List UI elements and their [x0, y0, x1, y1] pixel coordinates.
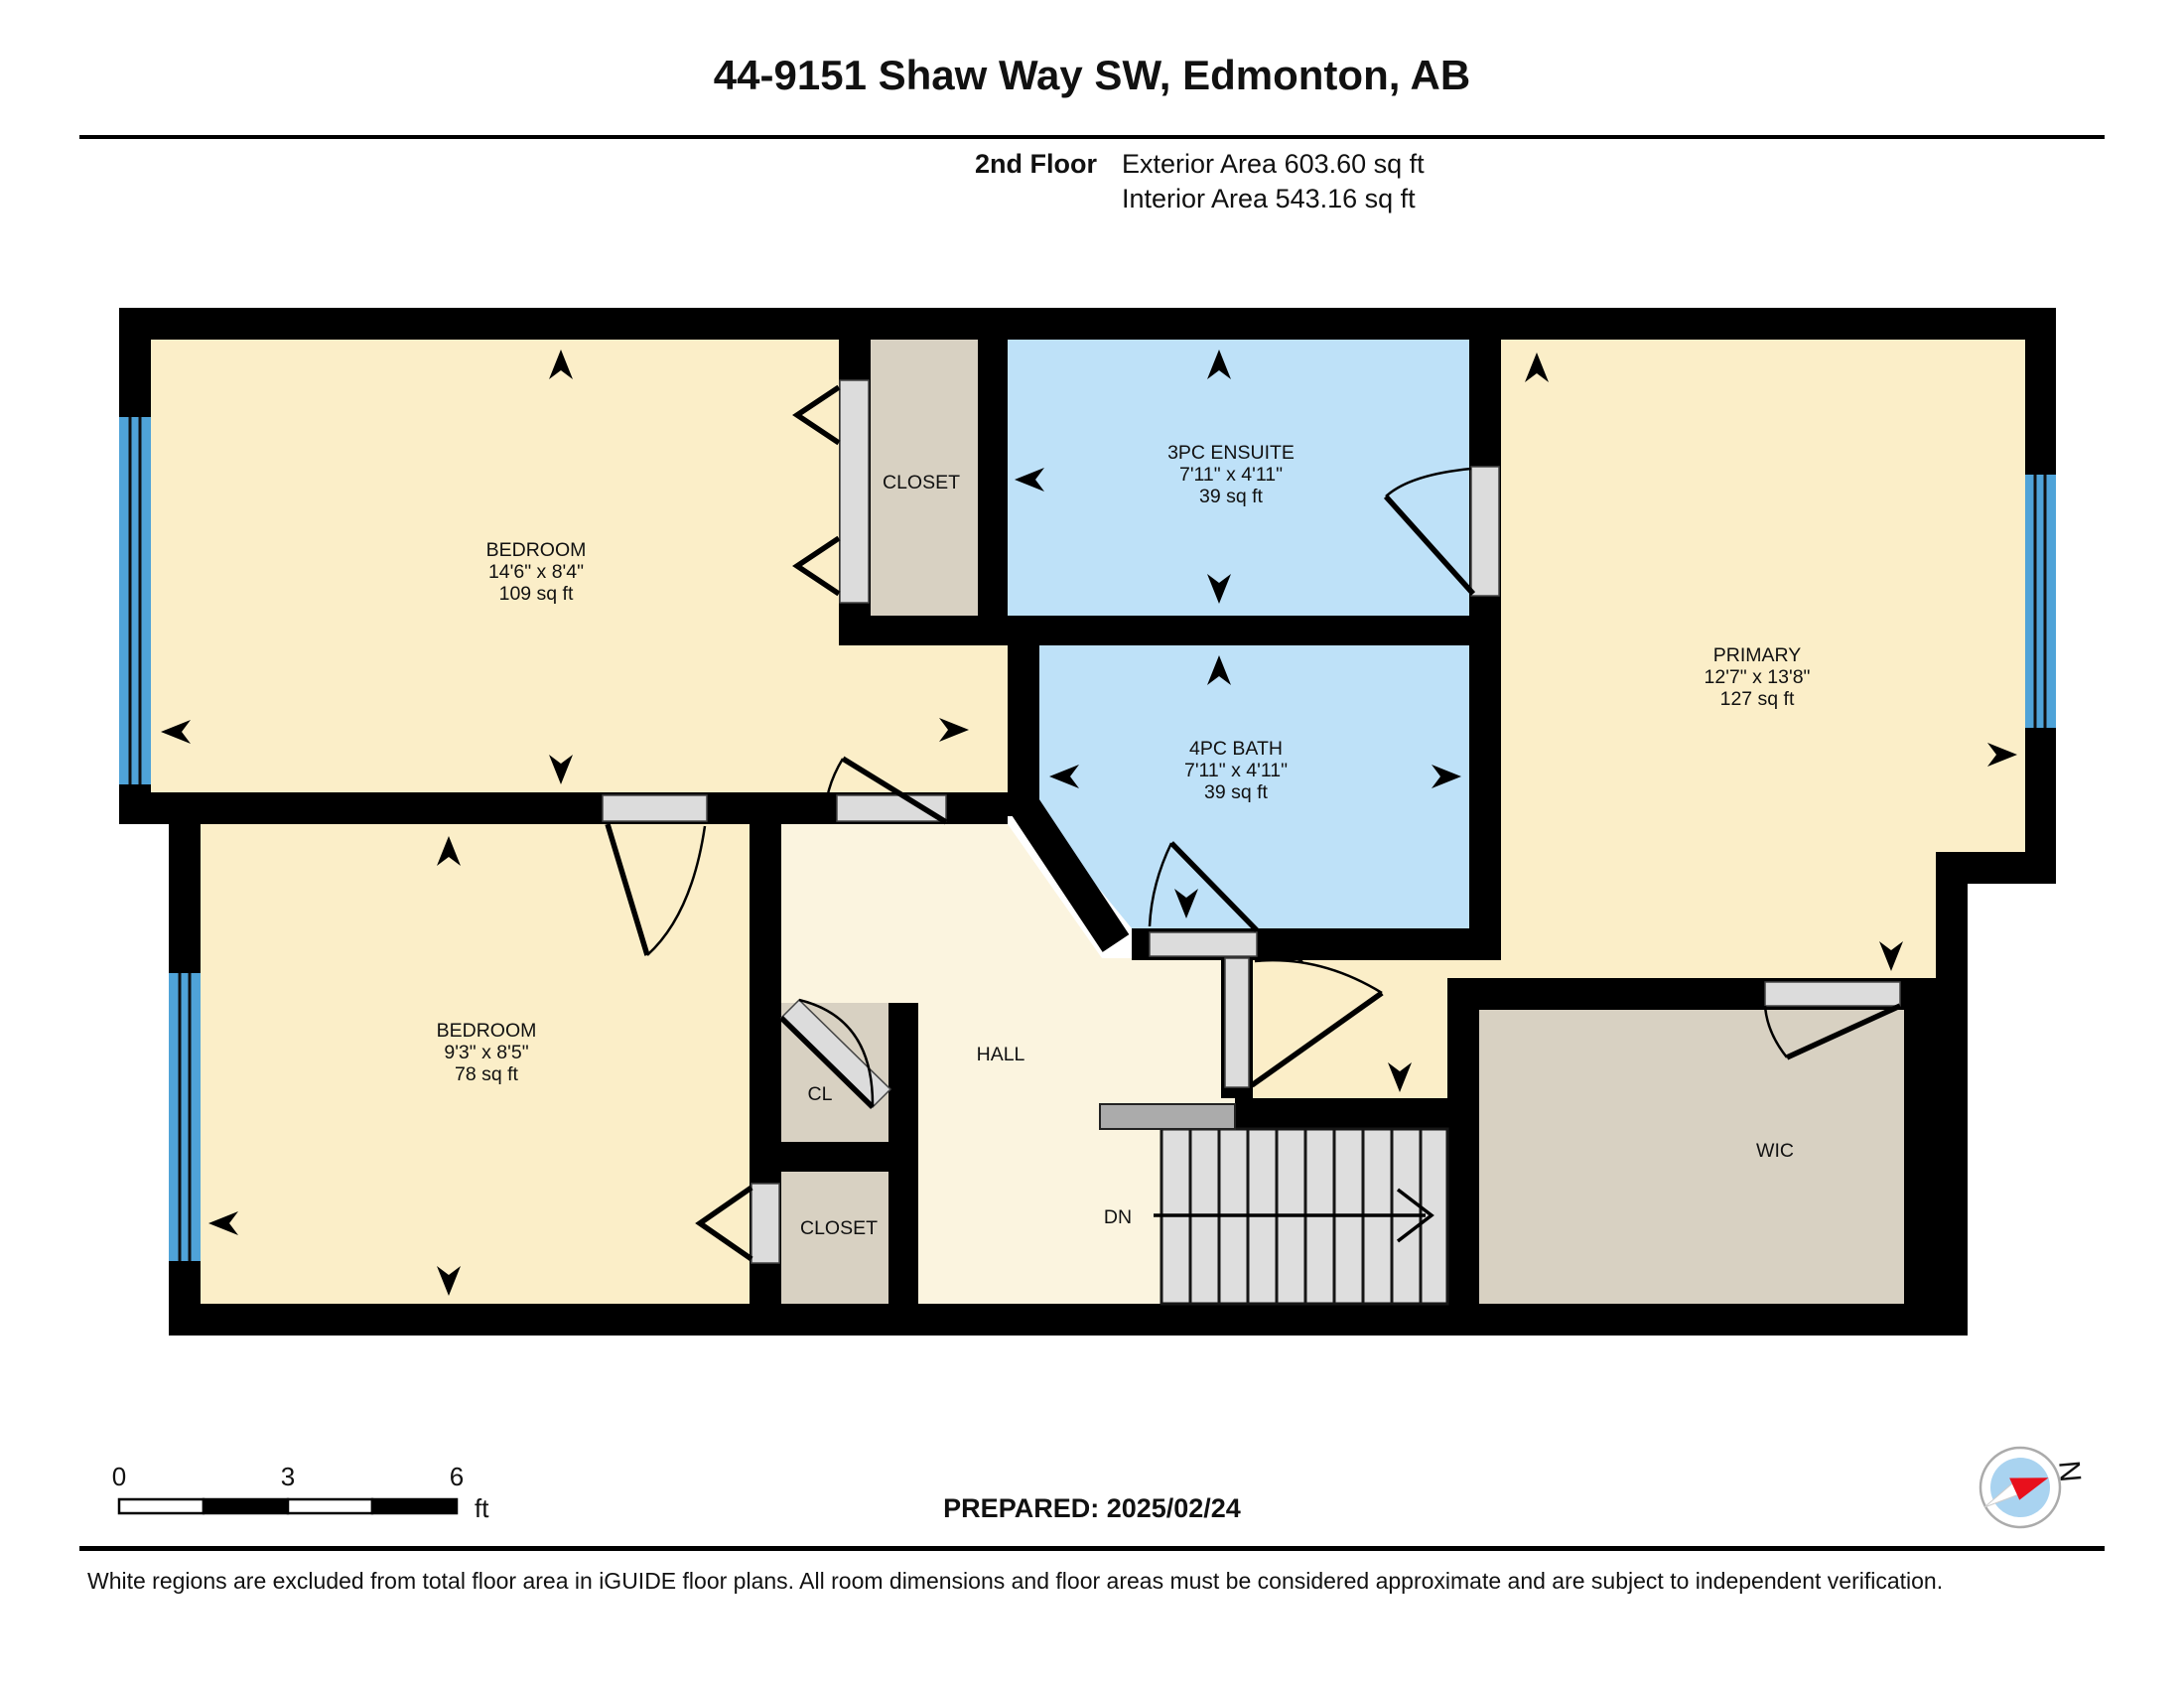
wall-right-lower: [1936, 884, 1968, 1336]
interior-area: Interior Area 543.16 sq ft: [1122, 184, 1416, 213]
wall-stairs-wic: [1447, 978, 1479, 1304]
wall-bottom: [169, 1304, 1968, 1336]
scale-seg-4: [372, 1499, 457, 1513]
room-dims: 7'11" x 4'11": [1184, 760, 1288, 781]
wall-bath-left: [1008, 645, 1039, 816]
scale-tick-0: 0: [112, 1462, 126, 1491]
footer: White regions are excluded from total fl…: [79, 1546, 2105, 1594]
scale-bar: 0 3 6 ft: [112, 1462, 489, 1523]
window-primary: [2025, 475, 2056, 728]
room-dims: 9'3" x 8'5": [444, 1042, 528, 1063]
opening-ensuite-door: [1471, 467, 1499, 596]
room-area: 109 sq ft: [499, 583, 574, 605]
page-title: 44-9151 Shaw Way SW, Edmonton, AB: [714, 52, 1470, 98]
window-bedroom1: [119, 417, 151, 784]
stair-landing: [1100, 1104, 1235, 1129]
scale-tick-3: 3: [281, 1462, 295, 1491]
room-name: PRIMARY: [1713, 644, 1802, 666]
closet-lower-label: CLOSET: [800, 1217, 878, 1239]
room-area: 127 sq ft: [1720, 688, 1795, 710]
floorplan-page: 44-9151 Shaw Way SW, Edmonton, AB 2nd Fl…: [0, 0, 2184, 1688]
prepared-date: PREPARED: 2025/02/24: [943, 1493, 1241, 1523]
bedroom1-label: BEDROOM 14'6" x 8'4" 109 sq ft: [486, 539, 587, 605]
closet-top-label: CLOSET: [883, 472, 960, 493]
opening-closet-top-bifold: [840, 380, 869, 603]
exterior-area: Exterior Area 603.60 sq ft: [1122, 149, 1425, 179]
footer-rule: [79, 1546, 2105, 1551]
scale-seg-2: [204, 1499, 288, 1513]
cl-label: CL: [808, 1083, 833, 1105]
room-area: 39 sq ft: [1199, 486, 1264, 507]
room-area: 78 sq ft: [455, 1063, 519, 1085]
opening-bath-door: [1150, 932, 1257, 956]
wic-label: WIC: [1756, 1140, 1794, 1162]
room-name: 4PC BATH: [1189, 738, 1283, 760]
wall-above-stairs: [1235, 1098, 1447, 1129]
wall-ensuite-bath: [839, 616, 1501, 645]
opening-wic-door: [1765, 982, 1900, 1006]
window-bedroom2: [169, 973, 201, 1261]
scale-tick-6: 6: [450, 1462, 464, 1491]
opening-hall-primary-door: [1225, 958, 1249, 1087]
opening-bedroom1-door: [837, 795, 946, 821]
hall-label: HALL: [977, 1044, 1025, 1065]
wic-floor: [1479, 1010, 1904, 1304]
header: 44-9151 Shaw Way SW, Edmonton, AB 2nd Fl…: [79, 52, 2105, 213]
room-name: BEDROOM: [437, 1020, 537, 1042]
room-area: 39 sq ft: [1204, 781, 1269, 803]
hall-floor-left: [781, 824, 918, 1003]
wall-top: [119, 308, 2056, 340]
stairs-dn-label: DN: [1104, 1206, 1132, 1228]
disclaimer-text: White regions are excluded from total fl…: [87, 1568, 1943, 1594]
room-dims: 7'11" x 4'11": [1179, 464, 1283, 486]
floor-label: 2nd Floor: [975, 149, 1097, 179]
opening-bedroom2-door: [603, 795, 707, 821]
compass-north-label: N: [2052, 1460, 2087, 1483]
room-name: 3PC ENSUITE: [1167, 442, 1295, 464]
scale-seg-1: [119, 1499, 204, 1513]
compass-icon: N: [1979, 1448, 2087, 1527]
scale-seg-3: [288, 1499, 372, 1513]
wall-cl-closet-divider: [750, 1142, 918, 1172]
scale-unit: ft: [475, 1493, 489, 1523]
room-dims: 14'6" x 8'4": [488, 561, 584, 583]
room-name: BEDROOM: [486, 539, 587, 561]
wall-right-step: [1936, 852, 2056, 884]
wall-ensuite-primary: [1469, 340, 1501, 960]
opening-closet-lower-bifold: [751, 1184, 779, 1263]
room-dims: 12'7" x 13'8": [1705, 666, 1811, 688]
header-rule: [79, 135, 2105, 139]
wall-closet-ensuite: [978, 340, 1008, 645]
